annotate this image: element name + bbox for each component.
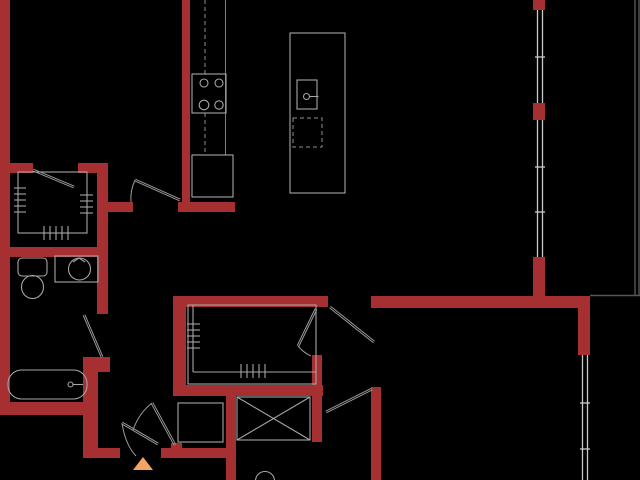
wall-laundry-jamb xyxy=(171,443,182,449)
wall-entry-left xyxy=(90,448,120,458)
wall-entry-right xyxy=(161,448,233,458)
wall-closet2-bottom xyxy=(173,385,323,396)
wall-kitchen xyxy=(182,0,190,204)
wall-bath1-corner xyxy=(83,357,110,372)
wall-window-jamb-top xyxy=(533,0,545,10)
floor-plan xyxy=(0,0,640,480)
wall-living-south xyxy=(371,296,590,308)
floor-plan-page xyxy=(0,0,640,480)
wall-window-jamb-mid xyxy=(533,103,545,120)
wall-right-corner xyxy=(578,296,590,355)
wall-closet2-right xyxy=(312,355,322,442)
wall-right-upper xyxy=(533,257,545,298)
wall-bed1-door-jamb xyxy=(107,202,133,212)
wall-left xyxy=(0,0,10,415)
wall-laundry-right xyxy=(226,396,236,480)
wall-kitchen-foot xyxy=(178,202,235,212)
wall-bath1-bottom xyxy=(0,402,87,415)
wall-closet2-left xyxy=(173,296,186,395)
wall-bed2-left xyxy=(371,387,381,480)
wall-bath1-right-upper xyxy=(97,257,108,314)
wall-closet1-right xyxy=(97,163,108,257)
